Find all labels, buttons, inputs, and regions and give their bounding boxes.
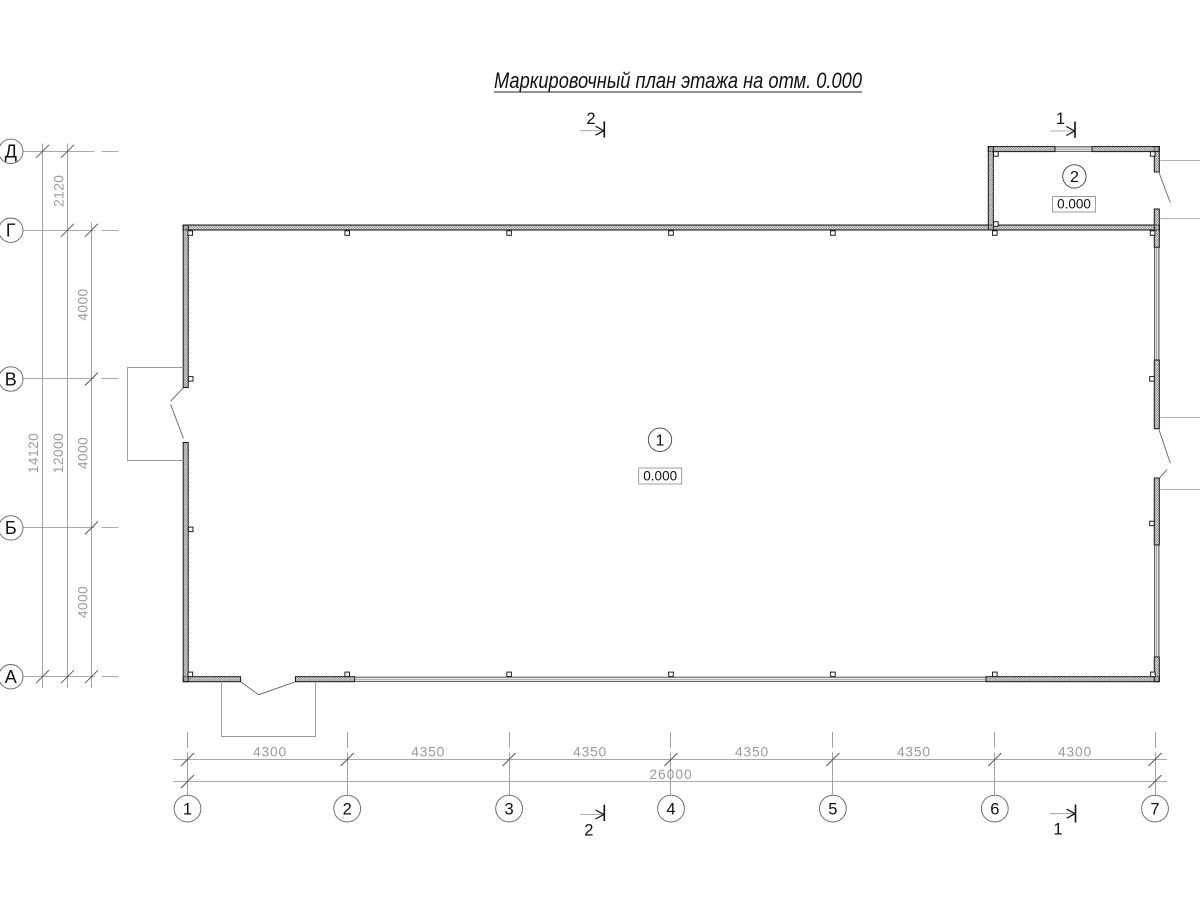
svg-text:4000: 4000 bbox=[75, 437, 90, 469]
svg-text:Г: Г bbox=[6, 221, 16, 241]
svg-text:В: В bbox=[5, 369, 17, 389]
svg-text:0.000: 0.000 bbox=[643, 469, 677, 484]
svg-text:7: 7 bbox=[1150, 801, 1159, 819]
svg-text:Д: Д bbox=[5, 142, 17, 162]
svg-text:4000: 4000 bbox=[75, 288, 90, 320]
svg-text:1: 1 bbox=[656, 433, 665, 450]
svg-text:2: 2 bbox=[1070, 169, 1079, 186]
svg-text:2: 2 bbox=[586, 110, 595, 128]
svg-text:4300: 4300 bbox=[1058, 745, 1092, 760]
svg-text:6: 6 bbox=[990, 801, 999, 819]
svg-text:Маркировочный план этажа на от: Маркировочный план этажа на отм. 0.000 bbox=[494, 68, 863, 93]
svg-text:4350: 4350 bbox=[897, 745, 931, 760]
svg-text:Б: Б bbox=[5, 518, 17, 538]
svg-text:4350: 4350 bbox=[573, 745, 607, 760]
svg-text:3: 3 bbox=[505, 801, 514, 819]
svg-text:5: 5 bbox=[828, 801, 837, 819]
svg-text:4000: 4000 bbox=[75, 586, 90, 618]
svg-text:4350: 4350 bbox=[735, 745, 769, 760]
svg-text:2: 2 bbox=[584, 821, 593, 839]
svg-text:1: 1 bbox=[1056, 110, 1065, 128]
svg-text:4: 4 bbox=[666, 801, 675, 819]
svg-text:4300: 4300 bbox=[253, 745, 287, 760]
svg-text:А: А bbox=[5, 667, 17, 687]
svg-text:0.000: 0.000 bbox=[1057, 197, 1091, 212]
svg-text:1: 1 bbox=[1053, 821, 1062, 839]
svg-text:14120: 14120 bbox=[26, 433, 41, 473]
svg-text:2: 2 bbox=[343, 801, 352, 819]
svg-text:1: 1 bbox=[183, 801, 192, 819]
svg-text:4350: 4350 bbox=[411, 745, 445, 760]
svg-text:26000: 26000 bbox=[649, 767, 692, 782]
svg-text:2120: 2120 bbox=[52, 175, 67, 207]
svg-text:12000: 12000 bbox=[51, 433, 66, 473]
